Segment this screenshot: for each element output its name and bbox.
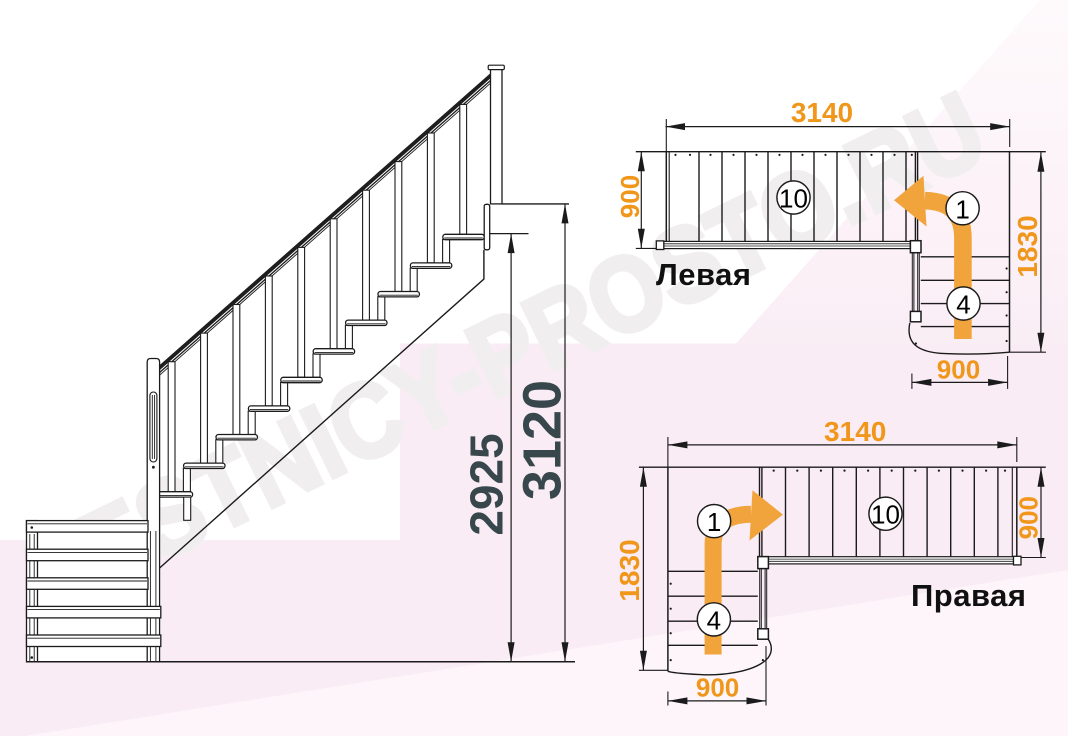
- svg-text:Левая: Левая: [656, 257, 751, 292]
- svg-text:1: 1: [707, 507, 721, 537]
- svg-text:3140: 3140: [824, 416, 886, 447]
- svg-text:10: 10: [871, 500, 900, 530]
- svg-text:4: 4: [956, 290, 970, 320]
- svg-text:1: 1: [955, 194, 969, 224]
- svg-text:10: 10: [779, 184, 808, 214]
- svg-text:2925: 2925: [460, 433, 512, 535]
- svg-text:900: 900: [937, 355, 980, 385]
- svg-text:4: 4: [707, 605, 721, 635]
- svg-text:Правая: Правая: [911, 578, 1026, 613]
- svg-text:900: 900: [1013, 496, 1043, 539]
- svg-text:1830: 1830: [614, 539, 645, 601]
- svg-text:900: 900: [615, 175, 645, 218]
- svg-text:1830: 1830: [1012, 215, 1043, 277]
- svg-text:3120: 3120: [512, 380, 572, 500]
- svg-text:900: 900: [696, 673, 739, 703]
- svg-text:3140: 3140: [791, 97, 853, 128]
